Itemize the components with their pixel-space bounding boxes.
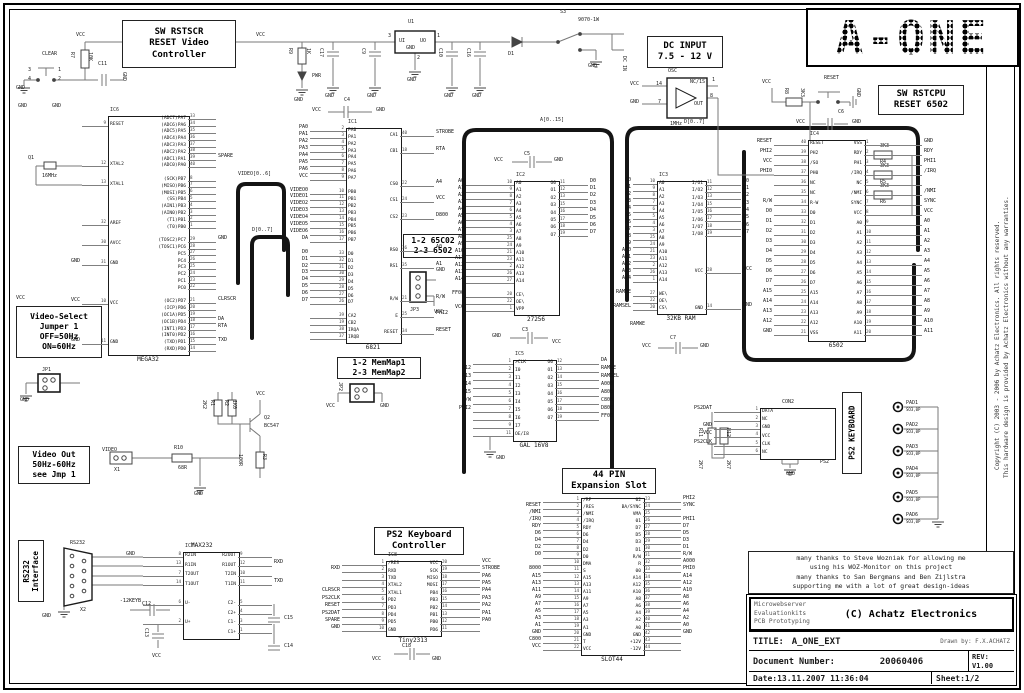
callout-text: PS2 KEYBOARD: [847, 406, 856, 460]
pin-number: 19: [557, 415, 562, 419]
net-label: GND: [294, 98, 303, 103]
a-one-logo: A-ONE: [806, 8, 1019, 67]
pin-name: PB4: [388, 592, 438, 597]
pin-number: 8: [330, 168, 344, 172]
pin-number: 21: [792, 330, 806, 334]
pin-number: 28: [645, 532, 650, 536]
pin-number: 17: [707, 216, 712, 220]
pin-name: (RXD)PD0: [110, 348, 186, 353]
signal-label: PS2DAT: [666, 406, 712, 411]
callout-line: SW RSTSCR: [155, 27, 204, 38]
pin-number: 22: [190, 284, 195, 288]
pin-wire: [774, 205, 808, 206]
signal-label: A9: [495, 595, 541, 600]
pin-number: 40: [792, 140, 806, 144]
signal-label: RAMSEL: [585, 304, 631, 309]
signal-label: A15: [726, 289, 772, 294]
pin-number: 1: [240, 628, 243, 632]
signal-label: GND: [294, 625, 340, 630]
pin-number: 12: [565, 575, 579, 579]
pin-number: 3: [370, 575, 384, 579]
signal-label: A1: [418, 186, 464, 191]
pin-name: VPP: [516, 308, 524, 313]
pin-name: A10: [516, 252, 524, 257]
pin-wire: [774, 235, 808, 236]
net-label: C18: [402, 644, 411, 649]
callout-line: 7.5 - 12 V: [658, 52, 712, 63]
net-label: GND: [20, 398, 29, 403]
signal-label: FF00: [601, 414, 613, 419]
pin-name: (ADC2)PA2: [110, 151, 186, 156]
pin-name: PC0: [110, 287, 186, 292]
pin-name: A10: [583, 591, 641, 596]
pin-number: 22: [402, 181, 407, 185]
pin-wire: [774, 305, 808, 306]
signal-label: D6: [262, 291, 308, 296]
signal-label: A11: [585, 255, 631, 260]
pin-wire: [440, 609, 480, 610]
pad-size-label: SO3,0P: [906, 519, 920, 524]
signal-label: PA1: [482, 611, 491, 616]
signal-label: PA3: [482, 596, 491, 601]
pin-wire: [555, 372, 599, 373]
pin-wire: [143, 585, 183, 586]
signal-label: A1: [585, 185, 631, 190]
signal-label: PA1: [262, 132, 308, 137]
pin-name: I/O4: [659, 204, 703, 209]
pin-number: 10: [370, 626, 384, 630]
pin-number: 16: [565, 603, 579, 607]
pin-wire: [774, 255, 808, 256]
pin-number: 25: [402, 312, 407, 316]
pin-name: (ADC3)PA3: [110, 144, 186, 149]
pin-number: 11: [560, 180, 565, 184]
signal-label: 8000: [495, 566, 541, 571]
pin-wire: [714, 454, 760, 455]
pin-number: 39: [792, 150, 806, 154]
pin-wire: [310, 339, 346, 340]
signal-label: A8: [418, 235, 464, 240]
net-label: 1: [437, 34, 440, 39]
net-label: VCC: [552, 340, 561, 345]
pin-wire: [466, 220, 514, 221]
pin-name: OE\: [516, 301, 524, 306]
ic-name: GAL 16V8: [513, 443, 555, 449]
pin-name: C1+: [185, 631, 236, 636]
signal-label: A13: [726, 309, 772, 314]
ground-symbol: [484, 452, 496, 457]
signal-label: DA: [601, 358, 607, 363]
signal-label: A15: [495, 574, 541, 579]
net-label: VCC: [76, 33, 85, 38]
pin-wire: [774, 315, 808, 316]
net-label: 1: [712, 78, 715, 83]
title-row: TITLE: A_ONE_EXT Drawn by: F.X.ACHATZ: [749, 631, 1014, 651]
pin-number: 33: [330, 251, 344, 255]
signal-label: /IRQ: [924, 169, 936, 174]
pin-wire: [864, 235, 922, 236]
pin-wire: [473, 436, 513, 437]
signal-label: A14: [585, 276, 631, 281]
pin-number: 38: [792, 160, 806, 164]
pin-wire: [440, 572, 480, 573]
pin-name: (AIN1)PB3: [110, 205, 186, 210]
pin-wire: [400, 153, 434, 154]
pin-name: NC: [810, 182, 862, 187]
pin-wire: [473, 396, 513, 397]
pin-number: 26: [645, 518, 650, 522]
pin-name: OE/I8: [515, 433, 529, 438]
pin-number: 4: [565, 518, 579, 522]
pin-wire: [473, 428, 513, 429]
pin-wire: [774, 275, 808, 276]
callout-line: RESET Video: [149, 38, 209, 49]
signal-label: A9: [585, 241, 631, 246]
pin-number: 1: [866, 140, 869, 144]
pin-name: O6: [515, 409, 553, 414]
pin-number: 15: [866, 280, 871, 284]
signal-label: RXD: [294, 566, 340, 571]
callout-line: Controller: [392, 541, 446, 552]
pin-wire: [400, 219, 434, 220]
pin-number: 1: [641, 277, 655, 281]
title-block: Microwebserver Evaluationkits PCB Protot…: [746, 594, 1017, 686]
pin-name: CS1: [348, 199, 398, 204]
net-label: VCC: [256, 33, 265, 38]
net-label: R3: [261, 454, 266, 460]
callout-line: Expansion Slot: [571, 481, 647, 492]
signal-label: VCC: [34, 298, 80, 303]
signal-label: VCC: [262, 174, 308, 179]
pin-name: RS0: [348, 249, 398, 254]
ic-ref: IC5: [515, 352, 524, 357]
pin-name: D5: [583, 534, 641, 539]
pin-number: 5: [565, 525, 579, 529]
pin-number: 3: [866, 160, 869, 164]
pin-name: I/O7: [659, 226, 703, 231]
pin-number: 17: [330, 237, 344, 241]
pin-number: 11: [866, 240, 871, 244]
signal-label: A10: [924, 319, 933, 324]
pin-name: (ADC5)PA5: [110, 130, 186, 135]
pin-name: A12: [583, 584, 641, 589]
signal-label: PHI2: [726, 149, 772, 154]
pin-wire: [82, 185, 108, 186]
pin-wire: [714, 421, 760, 422]
pad-label: PAD6: [906, 513, 918, 518]
signal-label: D0: [262, 250, 308, 255]
net-label: 4: [28, 77, 31, 82]
net-label: 2K7: [725, 460, 730, 469]
pin-number: 20: [641, 305, 655, 309]
pin-number: 8: [498, 194, 512, 198]
pin-number: 3: [565, 511, 579, 515]
pin-name: (OC1B)PD4: [110, 321, 186, 326]
pin-number: 15: [190, 339, 195, 343]
pin-number: 1: [190, 223, 193, 227]
pin-number: 2: [370, 567, 384, 571]
net-label: 2: [417, 56, 420, 61]
pin-name: (SCK)PB7: [110, 178, 186, 183]
net-label: C5: [524, 152, 530, 157]
ic-name: 27256: [514, 317, 558, 323]
pin-number: 7: [498, 201, 512, 205]
net-label: RAMWE: [630, 322, 645, 327]
net-label: GND: [472, 94, 481, 99]
pin-wire: [342, 602, 386, 603]
pin-name: R: [583, 563, 641, 568]
signal-label: C800: [495, 637, 541, 642]
pin-number: 14: [167, 580, 181, 584]
pin-name: 01: [583, 520, 641, 525]
pin-number: 19: [330, 320, 344, 324]
pin-wire: [473, 412, 513, 413]
net-label: S3: [560, 10, 566, 15]
callout-text: RS232Interface: [22, 551, 41, 592]
net-label: RESET: [824, 76, 839, 81]
pin-number: 19: [560, 231, 565, 235]
pin-number: 2: [565, 504, 579, 508]
pad-label: PAD4: [906, 467, 918, 472]
net-label: CON2: [782, 400, 794, 405]
pin-number: 6: [744, 449, 758, 453]
pad-size-label: SO3,0P: [906, 407, 920, 412]
pin-name: C2-: [185, 602, 236, 607]
pin-name: BA/SYNC: [583, 506, 641, 511]
pin-number: 3: [330, 133, 344, 137]
signal-label: A3: [418, 200, 464, 205]
pin-number: 10: [92, 299, 106, 303]
pin-number: 31: [792, 230, 806, 234]
signal-label: A8: [683, 595, 689, 600]
pin-number: 33: [792, 210, 806, 214]
pin-number: 8: [641, 193, 655, 197]
pin-number: 13: [92, 180, 106, 184]
net-label: C9: [360, 48, 365, 54]
net-label: GND: [325, 94, 334, 99]
pin-number: 16: [866, 290, 871, 294]
net-label: 3K3: [799, 88, 804, 97]
pin-wire: [342, 580, 386, 581]
pin-number: 18: [190, 318, 195, 322]
pin-number: 27: [792, 270, 806, 274]
pin-name: O3: [516, 204, 556, 209]
pin-name: O3: [515, 385, 553, 390]
pin-wire: [466, 213, 514, 214]
pin-number: 37: [792, 170, 806, 174]
pin-number: 7: [565, 539, 579, 543]
pin-wire: [864, 165, 922, 166]
pad-label: PAD5: [906, 491, 918, 496]
pin-number: 40: [190, 162, 195, 166]
pin-name: A11: [810, 332, 862, 337]
pin-wire: [774, 165, 808, 166]
signal-label: A13: [418, 270, 464, 275]
signal-label: A8: [585, 234, 631, 239]
pin-wire: [82, 344, 108, 345]
pin-number: 2: [330, 126, 344, 130]
pin-number: 16: [442, 589, 447, 593]
document-row: Document Number: 20060406 REV: V1.00: [749, 650, 1014, 672]
callout-line: RS232: [22, 551, 31, 592]
pin-name: A4: [583, 612, 641, 617]
signal-label: A15: [425, 390, 471, 395]
pin-number: 6: [497, 399, 511, 403]
net-label: C3: [522, 328, 528, 333]
net-label: Q1: [28, 156, 34, 161]
pin-number: 9: [92, 121, 106, 125]
pin-wire: [555, 388, 599, 389]
signal-label: STROBE: [436, 130, 454, 135]
net-label: GND: [42, 614, 51, 619]
pin-number: 27: [330, 292, 344, 296]
date-row: Date:13.11.2007 11:36:04 Sheet:1/2: [749, 671, 1014, 684]
pin-name: (ADC0)PA0: [110, 164, 186, 169]
signal-label: RAMSEL: [601, 374, 619, 379]
pin-number: 1: [565, 497, 579, 501]
pin-wire: [82, 304, 108, 305]
title-label: TITLE:: [753, 637, 784, 647]
pin-number: 6: [565, 532, 579, 536]
ic-name: 6821: [346, 345, 400, 351]
signal-label: GND: [666, 423, 712, 428]
pin-number: 8: [866, 210, 869, 214]
net-label: U1: [408, 20, 414, 25]
pin-number: 12: [92, 161, 106, 165]
pin-number: 12: [240, 561, 245, 565]
pin-number: 10: [498, 180, 512, 184]
pin-wire: [466, 304, 514, 305]
pin-wire: [864, 155, 922, 156]
signal-label: GND: [726, 329, 772, 334]
pin-number: 7: [370, 604, 384, 608]
pin-number: 1: [498, 306, 512, 310]
pin-number: 23: [402, 214, 407, 218]
pin-wire: [400, 334, 434, 335]
pin-number: 36: [792, 180, 806, 184]
pin-number: 27: [190, 250, 195, 254]
pin-number: 24: [792, 300, 806, 304]
net-label: C6: [838, 110, 844, 115]
pin-wire: [473, 364, 513, 365]
pin-number: 8: [167, 552, 181, 556]
doc-number: 20060406: [835, 657, 968, 667]
pin-number: 34: [792, 200, 806, 204]
pin-number: 26: [330, 299, 344, 303]
pin-name: D4: [348, 281, 354, 286]
pin-name: PH1: [810, 162, 862, 167]
signal-label: A3: [585, 199, 631, 204]
pin-wire: [774, 175, 808, 176]
callout-line: Video-Select: [30, 312, 88, 322]
pin-name: /IRQ: [810, 172, 862, 177]
pin-name: (TOSC1)PC6: [110, 246, 186, 251]
pin-number: 4: [240, 609, 243, 613]
callout-line: 2-3 MemMap2: [353, 368, 406, 378]
pin-wire: [188, 228, 216, 229]
signal-label: A6: [585, 220, 631, 225]
pin-number: 33: [190, 114, 195, 118]
pin-number: 16: [707, 209, 712, 213]
signal-label: FF00: [418, 291, 464, 296]
net-label: C14: [284, 644, 293, 649]
signal-label: A6: [924, 279, 930, 284]
pin-wire: [774, 145, 808, 146]
pin-number: 29: [645, 539, 650, 543]
net-label: OUT: [694, 102, 703, 107]
net-label: VCC: [762, 80, 771, 85]
pad-size-label: SO3,0P: [906, 473, 920, 478]
pin-number: 44: [645, 645, 650, 649]
pin-wire: [774, 245, 808, 246]
pin-wire: [643, 650, 681, 651]
pin-name: (MISO)PB6: [110, 185, 186, 190]
net-label: 7: [658, 100, 661, 105]
signal-label: D4: [495, 538, 541, 543]
pin-number: 21: [190, 298, 195, 302]
pin-name: A10: [810, 322, 862, 327]
pin-name: RS1: [348, 265, 398, 270]
pin-number: 5: [744, 441, 758, 445]
pin-number: 15: [557, 383, 562, 387]
pin-number: 9: [370, 619, 384, 623]
pin-wire: [543, 509, 581, 510]
net-label: 2K7: [697, 460, 702, 469]
pin-name: GND: [762, 426, 770, 431]
pin-name: MOSI: [388, 584, 438, 589]
ic-name: SLOT44: [581, 657, 643, 663]
pin-wire: [774, 335, 808, 336]
net-label: GND: [18, 104, 27, 109]
pin-number: 27: [645, 525, 650, 529]
pin-wire: [774, 325, 808, 326]
pin-name: O6: [516, 226, 556, 231]
pin-number: 23: [792, 310, 806, 314]
pin-number: 6: [330, 154, 344, 158]
pin-name: CA1: [348, 134, 398, 139]
net-label: VCC: [16, 296, 25, 301]
net-label: CLEAR: [42, 52, 57, 57]
net-label: C15: [284, 616, 293, 621]
signal-label: GND: [683, 630, 692, 635]
pin-wire: [543, 544, 581, 545]
copyright-line-2: This hardware design is provided by Acha…: [1003, 196, 1010, 478]
pin-number: 30: [792, 240, 806, 244]
schematic-title: A_ONE_EXT: [792, 637, 841, 647]
pin-number: 7: [330, 161, 344, 165]
pin-wire: [466, 227, 514, 228]
pin-name: PC4: [110, 260, 186, 265]
pin-name: A13: [516, 273, 524, 278]
net-label: GND: [855, 88, 860, 97]
pin-wire: [633, 282, 657, 283]
signal-label: PHI0: [726, 169, 772, 174]
signal-label: A12: [683, 581, 692, 586]
net-label: 10K: [87, 52, 92, 61]
pin-wire: [543, 502, 581, 503]
pin-name: PA7: [348, 177, 356, 182]
pin-number: 10: [565, 560, 579, 564]
pin-number: 12: [560, 187, 565, 191]
pin-number: 10: [866, 230, 871, 234]
pin-number: 1: [744, 407, 758, 411]
pin-number: 40: [645, 617, 650, 621]
signal-label: RTA: [436, 147, 445, 152]
pin-number: 10: [641, 179, 655, 183]
signal-label: D7: [726, 279, 772, 284]
pin-wire: [473, 372, 513, 373]
signal-label: A4: [924, 259, 930, 264]
